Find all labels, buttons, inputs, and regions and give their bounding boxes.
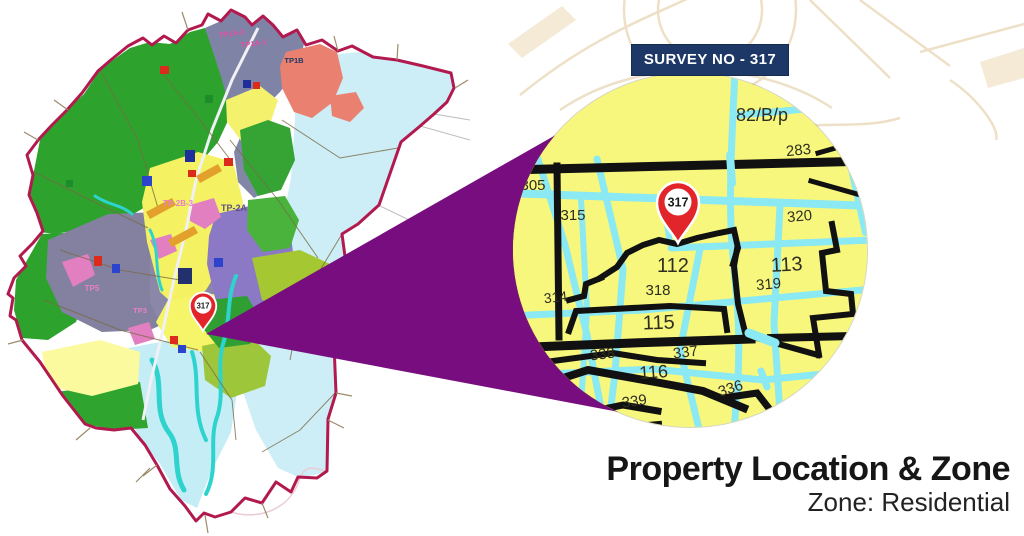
- parcel-label-337: 337: [672, 343, 699, 363]
- parcel-label-115: 115: [642, 311, 675, 334]
- inset-pin-label: 317: [668, 196, 689, 210]
- parcel-label-116: 116: [639, 361, 669, 383]
- survey-number-badge: SURVEY NO - 317: [632, 45, 788, 75]
- parcel-label-319: 319: [755, 275, 781, 294]
- parcel-label-338: 338: [589, 345, 616, 365]
- parcel-label-283: 283: [785, 141, 812, 161]
- parcel-label-112: 112: [657, 255, 689, 277]
- parcel-label-315: 315: [560, 207, 585, 224]
- map-pin: 317: [190, 293, 216, 331]
- parcel-label-339: 339: [621, 391, 648, 411]
- parcel-label-318: 318: [645, 282, 670, 299]
- property-location-page: { "badge": { "text": "SURVEY NO - 317" }…: [0, 0, 1024, 536]
- parcel-label-320: 320: [786, 207, 812, 226]
- title-block: Property Location & Zone Zone: Residenti…: [606, 451, 1010, 517]
- survey-plot-map: 82/B/p 283 305 315 320 112 113 318 319 3…: [513, 73, 867, 427]
- map-pin-label: 317: [196, 301, 210, 310]
- zone-subtitle: Zone: Residential: [606, 487, 1010, 517]
- parcel-label-113: 113: [770, 253, 803, 277]
- parcel-label-314: 314: [543, 288, 568, 306]
- parcel-label-82bp: 82/B/p: [736, 105, 788, 125]
- page-title: Property Location & Zone: [606, 451, 1010, 487]
- survey-inset-circle: 82/B/p 283 305 315 320 112 113 318 319 3…: [513, 73, 867, 427]
